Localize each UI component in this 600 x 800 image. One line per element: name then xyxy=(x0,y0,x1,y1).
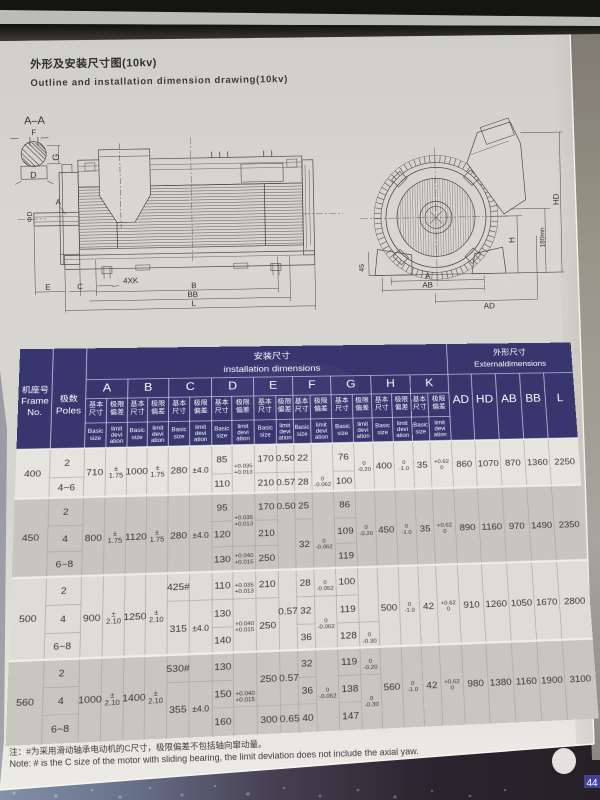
svg-text:500: 500 xyxy=(381,601,398,613)
svg-text:-1.0: -1.0 xyxy=(408,687,419,694)
svg-text:900: 900 xyxy=(83,612,101,624)
svg-text:860: 860 xyxy=(456,458,472,469)
svg-text:4: 4 xyxy=(58,695,64,707)
svg-text:C: C xyxy=(186,380,195,393)
svg-text:基本: 基本 xyxy=(172,398,186,407)
svg-text:36: 36 xyxy=(301,631,312,643)
svg-text:210: 210 xyxy=(258,477,275,488)
svg-text:0.57: 0.57 xyxy=(276,476,295,487)
svg-text:基本: 基本 xyxy=(130,399,145,408)
svg-text:44: 44 xyxy=(586,778,598,789)
svg-text:1.75: 1.75 xyxy=(107,538,122,545)
svg-text:+0.015: +0.015 xyxy=(235,627,254,634)
svg-text:910: 910 xyxy=(463,598,480,609)
svg-text:6~8: 6~8 xyxy=(53,640,71,652)
svg-text:0.57: 0.57 xyxy=(278,605,298,617)
svg-text:400: 400 xyxy=(376,460,392,471)
svg-text:HD: HD xyxy=(552,193,561,205)
svg-text:偏差: 偏差 xyxy=(236,405,250,414)
svg-text:尺寸: 尺寸 xyxy=(295,404,309,413)
svg-text:尺寸: 尺寸 xyxy=(413,402,427,411)
svg-text:119: 119 xyxy=(340,603,356,615)
svg-text:Basic: Basic xyxy=(129,428,144,434)
svg-text:极限: 极限 xyxy=(236,397,250,406)
svg-text:基本: 基本 xyxy=(375,395,389,404)
svg-text:-1.0: -1.0 xyxy=(399,466,409,472)
svg-text:偏差: 偏差 xyxy=(432,402,446,411)
svg-text:-0.20: -0.20 xyxy=(359,531,373,537)
svg-text:基本: 基本 xyxy=(89,400,104,409)
svg-text:limit: limit xyxy=(434,421,445,427)
svg-text:2: 2 xyxy=(64,457,70,468)
svg-text:2350: 2350 xyxy=(558,518,580,529)
svg-text:±4.0: ±4.0 xyxy=(192,531,209,540)
svg-text:AB: AB xyxy=(501,392,518,405)
svg-text:HD: HD xyxy=(476,392,494,405)
svg-text:installation dimensions: installation dimensions xyxy=(224,363,321,374)
svg-text:1070: 1070 xyxy=(477,458,499,469)
svg-text:1.75: 1.75 xyxy=(109,473,124,480)
svg-text:210: 210 xyxy=(258,527,275,538)
svg-text:ation: ation xyxy=(110,439,124,445)
svg-text:limit: limit xyxy=(195,425,206,431)
svg-text:G: G xyxy=(346,377,356,390)
svg-text:F: F xyxy=(31,128,36,137)
svg-text:280: 280 xyxy=(171,465,188,476)
svg-text:560: 560 xyxy=(383,680,400,692)
svg-text:2: 2 xyxy=(63,506,69,517)
svg-text:+0.015: +0.015 xyxy=(236,697,255,704)
svg-text:0.50: 0.50 xyxy=(276,452,295,463)
svg-text:A: A xyxy=(425,271,431,280)
svg-text:-1.0: -1.0 xyxy=(401,530,411,536)
svg-text:4~6: 4~6 xyxy=(58,482,76,493)
svg-text:130: 130 xyxy=(214,553,231,564)
svg-text:size: size xyxy=(90,436,102,442)
svg-text:1250: 1250 xyxy=(123,610,146,622)
svg-text:32: 32 xyxy=(301,657,313,669)
svg-text:500: 500 xyxy=(19,613,37,625)
svg-text:450: 450 xyxy=(378,523,395,534)
svg-text:970: 970 xyxy=(508,520,525,531)
svg-text:ation: ation xyxy=(151,438,165,444)
svg-text:1050: 1050 xyxy=(510,597,532,609)
svg-text:2.10: 2.10 xyxy=(105,699,120,707)
svg-text:Poles: Poles xyxy=(56,405,82,416)
svg-text:250: 250 xyxy=(259,619,276,631)
svg-text:尺寸: 尺寸 xyxy=(335,403,349,412)
svg-text:极限: 极限 xyxy=(151,399,166,408)
svg-text:1.75: 1.75 xyxy=(150,537,165,544)
svg-text:-0.052: -0.052 xyxy=(317,586,334,593)
svg-text:-0.062: -0.062 xyxy=(314,482,331,488)
svg-text:-0.062: -0.062 xyxy=(319,693,337,700)
svg-text:76: 76 xyxy=(338,451,349,462)
svg-text:极限: 极限 xyxy=(432,394,446,402)
svg-text:L: L xyxy=(191,299,196,308)
svg-text:devi: devi xyxy=(279,429,290,435)
svg-text:K: K xyxy=(425,376,434,389)
svg-text:Externaldimensions: Externaldimensions xyxy=(474,359,547,369)
svg-text:Frame: Frame xyxy=(21,396,49,406)
svg-text:limit: limit xyxy=(111,427,123,433)
svg-text:140: 140 xyxy=(214,634,231,646)
svg-text:Basic: Basic xyxy=(258,426,273,432)
svg-text:ation: ation xyxy=(356,434,369,440)
svg-text:极限: 极限 xyxy=(394,395,408,404)
svg-text:980: 980 xyxy=(467,677,484,689)
svg-text:42: 42 xyxy=(426,679,438,691)
svg-text:2800: 2800 xyxy=(564,595,586,607)
svg-text:+0.013: +0.013 xyxy=(234,470,253,476)
svg-text:170: 170 xyxy=(258,500,275,511)
svg-text:560: 560 xyxy=(16,696,34,708)
svg-text:170: 170 xyxy=(257,453,273,464)
svg-text:6~8: 6~8 xyxy=(55,558,73,570)
svg-text:40: 40 xyxy=(302,712,314,724)
svg-text:2.10: 2.10 xyxy=(106,618,121,626)
svg-text:±4.0: ±4.0 xyxy=(193,466,210,475)
svg-text:Basic: Basic xyxy=(295,425,310,431)
svg-text:基本: 基本 xyxy=(258,397,272,406)
svg-text:B: B xyxy=(144,380,153,393)
svg-text:E: E xyxy=(269,379,277,392)
svg-text:180mn: 180mn xyxy=(539,227,546,247)
svg-text:Basic: Basic xyxy=(375,423,390,429)
svg-text:A: A xyxy=(56,198,62,207)
svg-text:-0.20: -0.20 xyxy=(357,467,371,473)
svg-text:limit: limit xyxy=(397,421,408,427)
svg-text:2: 2 xyxy=(58,667,64,679)
svg-text:86: 86 xyxy=(339,498,350,509)
svg-text:3100: 3100 xyxy=(569,672,591,684)
svg-text:尺寸: 尺寸 xyxy=(215,406,229,415)
svg-text:2250: 2250 xyxy=(554,456,575,467)
svg-text:130: 130 xyxy=(214,660,231,672)
svg-text:1000: 1000 xyxy=(125,465,147,476)
svg-text:1.75: 1.75 xyxy=(150,472,165,479)
svg-text:35: 35 xyxy=(417,459,428,470)
svg-text:1400: 1400 xyxy=(122,691,146,704)
svg-text:limit: limit xyxy=(316,423,327,429)
svg-text:150: 150 xyxy=(214,688,231,700)
svg-text:ation: ation xyxy=(315,435,328,441)
svg-text:devi: devi xyxy=(397,427,408,433)
svg-text:D: D xyxy=(30,170,37,180)
svg-text:ation: ation xyxy=(434,432,447,438)
svg-text:极限: 极限 xyxy=(194,398,208,407)
svg-text:6~8: 6~8 xyxy=(51,722,69,735)
svg-text:偏差: 偏差 xyxy=(314,404,328,413)
svg-text:基本: 基本 xyxy=(412,394,426,402)
svg-text:4: 4 xyxy=(62,533,68,544)
svg-text:1900: 1900 xyxy=(541,674,563,686)
svg-text:-0.20: -0.20 xyxy=(364,665,378,672)
svg-text:300: 300 xyxy=(260,713,277,725)
svg-text:基本: 基本 xyxy=(295,396,309,405)
svg-text:130: 130 xyxy=(214,607,231,619)
svg-text:limit: limit xyxy=(152,426,164,432)
svg-text:+0.013: +0.013 xyxy=(234,521,253,527)
svg-text:22: 22 xyxy=(297,452,308,463)
svg-text:28: 28 xyxy=(300,577,311,588)
svg-text:尺寸: 尺寸 xyxy=(89,408,104,417)
svg-text:85: 85 xyxy=(216,454,227,465)
svg-text:AD: AD xyxy=(452,393,469,406)
svg-text:890: 890 xyxy=(459,521,476,532)
svg-text:0: 0 xyxy=(447,606,451,612)
svg-text:160: 160 xyxy=(214,715,231,727)
svg-text:size: size xyxy=(415,430,427,436)
svg-text:ΦD: ΦD xyxy=(27,211,34,222)
svg-text:C: C xyxy=(77,282,83,291)
svg-text:250: 250 xyxy=(260,672,277,684)
svg-text:-0.062: -0.062 xyxy=(317,624,335,631)
svg-text:外形尺寸: 外形尺寸 xyxy=(493,347,526,356)
svg-text:355: 355 xyxy=(169,703,186,715)
svg-text:F: F xyxy=(308,378,316,391)
svg-text:315: 315 xyxy=(170,622,187,634)
svg-text:0: 0 xyxy=(443,529,447,535)
svg-text:710: 710 xyxy=(86,466,103,477)
svg-text:limit: limit xyxy=(237,424,248,430)
svg-text:limit: limit xyxy=(279,423,290,429)
svg-text:H: H xyxy=(386,377,395,390)
svg-text:25: 25 xyxy=(298,499,309,510)
svg-text:D: D xyxy=(228,379,237,392)
svg-text:极限: 极限 xyxy=(277,397,291,406)
svg-text:120: 120 xyxy=(214,528,231,539)
svg-text:-0.30: -0.30 xyxy=(363,638,377,645)
svg-text:530#: 530# xyxy=(167,662,191,674)
svg-text:AD: AD xyxy=(484,301,496,310)
svg-text:No.: No. xyxy=(27,407,42,417)
svg-text:基本: 基本 xyxy=(335,396,349,405)
svg-text:1490: 1490 xyxy=(531,519,553,530)
svg-text:基本: 基本 xyxy=(215,398,229,407)
svg-text:210: 210 xyxy=(259,578,276,590)
svg-text:Basic: Basic xyxy=(171,427,186,433)
svg-text:0.65: 0.65 xyxy=(280,712,300,724)
svg-text:ation: ation xyxy=(194,437,208,443)
svg-text:Basic: Basic xyxy=(88,429,104,435)
svg-text:4XK: 4XK xyxy=(123,276,139,285)
svg-text:size: size xyxy=(297,432,309,438)
svg-text:-1.0: -1.0 xyxy=(404,608,415,614)
svg-text:1160: 1160 xyxy=(481,520,502,531)
svg-text:1260: 1260 xyxy=(485,597,507,609)
svg-text:L: L xyxy=(556,391,564,404)
svg-text:1670: 1670 xyxy=(536,596,558,608)
svg-text:±4.0: ±4.0 xyxy=(192,704,210,714)
svg-text:870: 870 xyxy=(505,457,521,468)
svg-text:尺寸: 尺寸 xyxy=(130,407,145,416)
svg-text:110: 110 xyxy=(214,478,230,489)
svg-text:偏差: 偏差 xyxy=(355,403,369,412)
svg-text:425#: 425# xyxy=(167,581,191,593)
svg-text:128: 128 xyxy=(340,629,357,641)
svg-text:45: 45 xyxy=(359,264,366,272)
svg-text:32: 32 xyxy=(300,604,311,615)
svg-text:size: size xyxy=(377,430,389,436)
svg-text:28: 28 xyxy=(298,476,309,487)
svg-text:138: 138 xyxy=(341,682,358,694)
svg-text:Basic: Basic xyxy=(214,426,229,432)
svg-text:42: 42 xyxy=(423,600,434,611)
svg-text:偏差: 偏差 xyxy=(110,407,125,416)
svg-text:2: 2 xyxy=(61,585,67,596)
svg-text:偏差: 偏差 xyxy=(278,404,292,413)
svg-text:E: E xyxy=(45,283,51,292)
svg-text:偏差: 偏差 xyxy=(151,407,166,416)
svg-text:尺寸: 尺寸 xyxy=(375,403,389,412)
svg-text:尺寸: 尺寸 xyxy=(258,405,272,414)
svg-text:32: 32 xyxy=(299,538,310,549)
svg-text:ation: ation xyxy=(236,436,249,442)
svg-text:极限: 极限 xyxy=(355,395,369,404)
svg-text:450: 450 xyxy=(22,532,40,543)
svg-text:0.57: 0.57 xyxy=(279,671,299,683)
svg-text:A–A: A–A xyxy=(24,115,46,127)
svg-text:极限: 极限 xyxy=(314,396,328,405)
svg-text:size: size xyxy=(131,435,143,441)
svg-text:G: G xyxy=(51,154,61,161)
svg-text:+0.013: +0.013 xyxy=(235,588,254,595)
svg-text:ation: ation xyxy=(396,433,409,439)
svg-text:size: size xyxy=(260,433,272,439)
svg-text:偏差: 偏差 xyxy=(395,402,409,411)
svg-text:100: 100 xyxy=(338,575,355,586)
svg-text:B: B xyxy=(191,281,197,290)
svg-text:110: 110 xyxy=(214,579,230,591)
svg-text:800: 800 xyxy=(85,532,102,543)
svg-text:147: 147 xyxy=(342,710,359,722)
svg-text:36: 36 xyxy=(302,684,314,696)
svg-text:-0.062: -0.062 xyxy=(316,544,333,550)
svg-text:size: size xyxy=(337,431,349,437)
svg-text:devi: devi xyxy=(357,428,368,434)
svg-text:0.50: 0.50 xyxy=(277,500,296,511)
svg-text:size: size xyxy=(216,434,228,440)
svg-text:2.10: 2.10 xyxy=(149,616,164,624)
svg-text:limit: limit xyxy=(357,422,368,428)
svg-text:250: 250 xyxy=(258,552,275,563)
svg-text:极数: 极数 xyxy=(60,394,79,404)
svg-text:devi: devi xyxy=(195,431,206,437)
svg-text:devi: devi xyxy=(111,433,123,439)
svg-text:Basic: Basic xyxy=(413,423,428,429)
svg-text:0: 0 xyxy=(440,465,444,471)
svg-text:35: 35 xyxy=(419,522,430,533)
svg-text:A: A xyxy=(103,381,112,394)
svg-text:1000: 1000 xyxy=(78,693,102,706)
svg-text:119: 119 xyxy=(338,549,354,560)
svg-text:1380: 1380 xyxy=(489,676,512,688)
svg-text:BB: BB xyxy=(525,392,542,405)
svg-text:BB: BB xyxy=(187,290,198,299)
svg-text:1360: 1360 xyxy=(527,457,549,468)
svg-text:偏差: 偏差 xyxy=(194,406,208,415)
svg-text:AB: AB xyxy=(422,280,433,289)
svg-text:280: 280 xyxy=(170,529,187,540)
svg-text:devi: devi xyxy=(316,429,327,435)
svg-text:2.10: 2.10 xyxy=(148,698,163,706)
svg-text:119: 119 xyxy=(341,655,357,667)
svg-text:+0.015: +0.015 xyxy=(235,559,254,566)
svg-text:devi: devi xyxy=(237,430,248,436)
svg-text:1120: 1120 xyxy=(125,530,147,542)
svg-text:size: size xyxy=(173,434,185,440)
svg-text:devi: devi xyxy=(152,432,164,438)
svg-text:机座号: 机座号 xyxy=(22,385,49,395)
svg-text:ation: ation xyxy=(278,436,291,442)
svg-text:尺寸: 尺寸 xyxy=(172,406,186,415)
svg-text:400: 400 xyxy=(24,468,41,479)
svg-text:H: H xyxy=(507,237,516,243)
svg-text:0: 0 xyxy=(451,685,455,691)
svg-text:109: 109 xyxy=(337,525,354,536)
svg-text:-0.30: -0.30 xyxy=(365,702,379,709)
svg-text:100: 100 xyxy=(336,475,353,486)
svg-text:95: 95 xyxy=(217,502,228,513)
svg-text:极限: 极限 xyxy=(110,399,125,408)
svg-text:安装尺寸: 安装尺寸 xyxy=(254,350,291,361)
svg-text:1160: 1160 xyxy=(515,675,537,687)
svg-text:devi: devi xyxy=(434,426,445,432)
svg-text:4: 4 xyxy=(60,613,66,625)
svg-text:Basic: Basic xyxy=(335,424,350,430)
svg-text:±4.0: ±4.0 xyxy=(192,624,209,634)
